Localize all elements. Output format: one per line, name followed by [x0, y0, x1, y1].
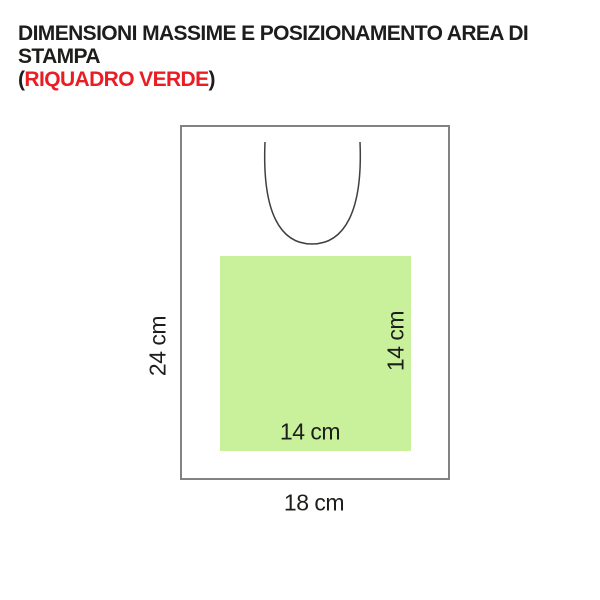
print-width-label: 14 cm [280, 419, 340, 446]
print-height-label: 14 cm [383, 311, 410, 371]
garment-width-label: 18 cm [284, 490, 344, 517]
title-highlight: RIQUADRO VERDE [24, 68, 208, 91]
garment-height-label: 24 cm [145, 316, 172, 376]
title-paren-close: ) [209, 68, 215, 91]
page-title: DIMENSIONI MASSIME E POSIZIONAMENTO AREA… [18, 22, 588, 91]
page: { "title": { "line1": "DIMENSIONI MASSIM… [0, 0, 600, 600]
title-line1: DIMENSIONI MASSIME E POSIZIONAMENTO AREA… [18, 22, 528, 68]
